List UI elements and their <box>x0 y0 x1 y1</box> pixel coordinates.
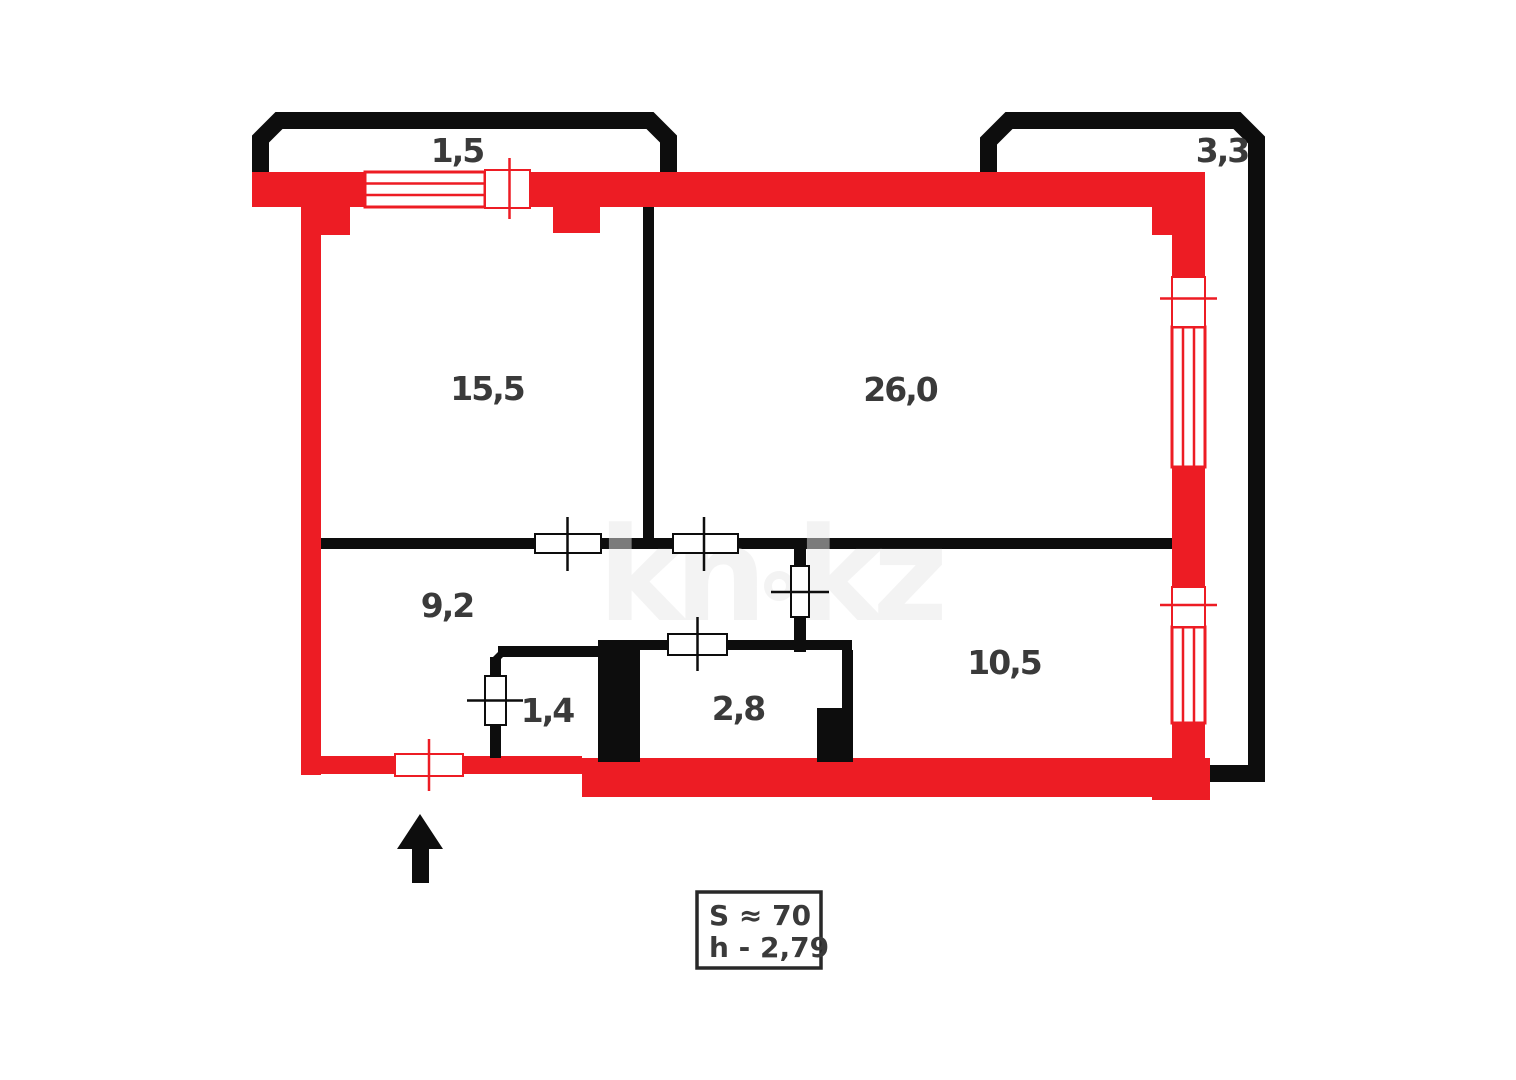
floor-plan-canvas: kn kz <box>0 0 1516 1080</box>
balcony-left-area-label: 1,5 <box>431 131 483 170</box>
watermark: kn kz <box>598 499 942 651</box>
window-right-lower-icon <box>1172 627 1205 723</box>
info-box: S ≈ 70 h - 2,79 <box>697 892 829 968</box>
wall-pier-left <box>321 207 350 235</box>
red-wall-doors <box>395 158 1217 791</box>
door-room-left-icon <box>535 517 601 571</box>
watermark-text-kz: kz <box>796 499 942 651</box>
door-balcony-right-upper-icon <box>1160 277 1217 327</box>
door-balcony-left-icon <box>485 158 530 219</box>
bath-corner-pillar <box>817 708 853 762</box>
entrance-arrow-icon <box>397 814 443 883</box>
closet-left-wall-upper <box>490 657 501 678</box>
wall-pier-right <box>1152 207 1173 235</box>
balcony-outlines <box>261 121 1257 774</box>
closet-left-wall-lower <box>490 723 501 758</box>
wall-hall-segment-1 <box>321 538 535 549</box>
hall-area-label: 9,2 <box>421 586 473 625</box>
bath-right-wall <box>842 650 853 708</box>
floor-plan-drawing: kn kz <box>0 0 1516 1080</box>
room-left-area-label: 15,5 <box>450 369 523 408</box>
wall-pier-mid <box>553 207 600 233</box>
door-balcony-right-lower-icon <box>1160 587 1217 627</box>
watermark-dot-icon <box>768 575 790 597</box>
black-interior-walls <box>321 207 1172 762</box>
watermark-text-kn: kn <box>598 499 757 651</box>
info-box-area-line: S ≈ 70 <box>709 899 811 932</box>
wall-left <box>301 207 321 775</box>
door-entrance-icon <box>395 739 463 791</box>
wall-right-segment-1 <box>1172 207 1205 277</box>
room-right-area-label: 26,0 <box>863 370 937 409</box>
kitchen-area-label: 10,5 <box>967 643 1040 682</box>
wall-right-segment-3 <box>1172 723 1205 760</box>
wall-right-segment-2 <box>1172 467 1205 587</box>
info-box-height-line: h - 2,79 <box>709 931 829 964</box>
closet-area-label: 1,4 <box>521 691 574 730</box>
closet-top-wall <box>498 646 600 657</box>
wall-bottom-right <box>582 758 1190 797</box>
balcony-right-area-label: 3,3 <box>1196 131 1248 170</box>
wall-between-rooms <box>643 207 654 548</box>
window-right-upper-icon <box>1172 327 1205 467</box>
bathroom-area-label: 2,8 <box>712 689 764 728</box>
window-top-icon <box>365 172 485 207</box>
closet-bath-divider-block <box>598 640 640 762</box>
door-closet-icon <box>467 676 523 725</box>
